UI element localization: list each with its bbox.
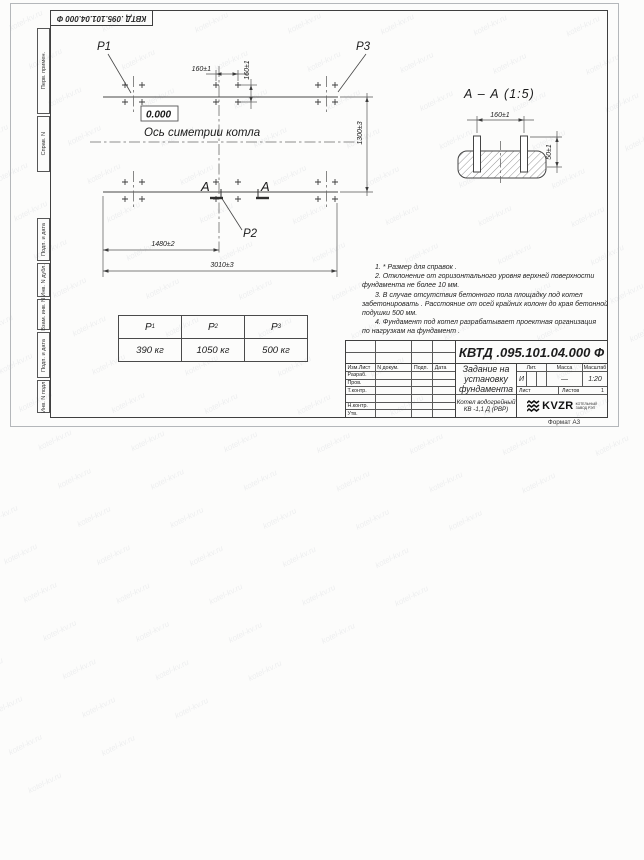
sign-row: Утв.: [346, 410, 455, 417]
margin-box-vzam-inv: Взам. инв. N: [37, 299, 50, 330]
mass-header: Масса: [547, 364, 583, 371]
margin-label: Справ. N: [41, 132, 47, 155]
margin-label: Перв. примен.: [41, 52, 47, 89]
revision-header-row: Изм.Лист N докум. Подп. Дата: [346, 364, 455, 372]
sign-row: Разраб.: [346, 372, 455, 380]
title-block-doc-row: КВТД .095.101.04.000 Ф: [346, 341, 607, 364]
sheets-cell: Листов 1: [559, 387, 607, 394]
sign-row: Пров.: [346, 380, 455, 388]
note-line: 2. Отклонение от горизонтального уровня …: [362, 272, 608, 281]
load-table-header-p1: P1: [119, 316, 182, 338]
margin-box-inv-podl: Инв. N подл.: [37, 380, 50, 413]
lit-mass-scale-values: И — 1:20: [517, 372, 607, 387]
sheets-value: 1: [601, 388, 604, 394]
drawing-title: Задание на установку фундамента: [456, 364, 516, 395]
lit-mass-scale-header: Лит. Масса Масштаб: [517, 364, 607, 372]
lit-cells: И: [517, 372, 547, 386]
note-line: по нагрузкам на фундамент .: [362, 327, 608, 336]
notes-block: 1. * Размер для справок . 2. Отклонение …: [362, 263, 608, 337]
margin-box-podp-data-1: Подп. и дата: [37, 218, 50, 261]
load-value-p2: 1050 кг: [182, 339, 245, 361]
kvzr-logo-text: KVZR: [542, 400, 574, 412]
note-line: забетонировать . Расстояние от осей край…: [362, 300, 608, 309]
product-name: Котел водогрейный КВ -1,1 Д (РВР): [456, 395, 516, 417]
format-label: Формат А3: [520, 419, 608, 426]
sheets-label: Листов: [562, 388, 579, 394]
top-rotated-stamp: КВТД .095.101.04.000 Ф: [50, 10, 153, 26]
rev-col-ndocum: N докум.: [376, 364, 413, 371]
note-line: 4. Фундамент под котел разрабатывает про…: [362, 318, 608, 327]
rev-col-izm-list: Изм.Лист: [346, 364, 376, 371]
sheet-row: Лист Листов 1: [517, 387, 607, 395]
load-table-header-row: P1 P2 P3: [119, 316, 307, 339]
load-table-header-p3: P3: [245, 316, 307, 338]
scale-header: Масштаб: [583, 364, 607, 371]
margin-label: Взам. инв. N: [41, 298, 47, 331]
note-line: 1. * Размер для справок .: [362, 263, 608, 272]
note-line: 3. В случае отсутствия бетонного пола пл…: [362, 291, 608, 300]
rev-col-podp: Подп.: [412, 364, 433, 371]
margin-label: Инв. N дубл.: [41, 264, 47, 297]
margin-label: Подп. и дата: [41, 223, 47, 256]
margin-box-perv-primen: Перв. примен.: [37, 28, 50, 114]
load-table-value-row: 390 кг 1050 кг 500 кг: [119, 339, 307, 361]
sheet-label: Лист: [517, 387, 559, 394]
doc-number: КВТД .095.101.04.000 Ф: [456, 341, 607, 363]
sign-row: Т.контр.: [346, 387, 455, 395]
mass-value: —: [547, 372, 583, 386]
margin-label: Подп. и дата: [41, 339, 47, 372]
title-block: КВТД .095.101.04.000 Ф Изм.Лист N докум.…: [345, 340, 608, 418]
margin-box-podp-data-2: Подп. и дата: [37, 332, 50, 378]
margin-box-sprav-n: Справ. N: [37, 116, 50, 172]
load-table: P1 P2 P3 390 кг 1050 кг 500 кг: [118, 315, 308, 362]
load-table-header-p2: P2: [182, 316, 245, 338]
load-value-p1: 390 кг: [119, 339, 182, 361]
load-value-p3: 500 кг: [245, 339, 307, 361]
top-stamp-doc-number: КВТД .095.101.04.000 Ф: [57, 14, 146, 23]
sign-row: Н.контр.: [346, 403, 455, 411]
kvzr-logo-sub2: ЗАВОД РЭП: [576, 406, 597, 410]
lit-header: Лит.: [517, 364, 547, 371]
note-line: подушки 500 мм.: [362, 309, 608, 318]
signature-grid: Изм.Лист N докум. Подп. Дата Разраб. Про…: [346, 364, 456, 417]
margin-box-inv-dubl: Инв. N дубл.: [37, 263, 50, 297]
lit-value: И: [517, 372, 527, 386]
margin-label: Инв. N подл.: [41, 380, 47, 413]
kvzr-logo-icon: [527, 400, 540, 413]
sign-row: [346, 395, 455, 403]
revision-grid: [346, 341, 456, 363]
note-line: фундамента не более 10 мм.: [362, 281, 608, 290]
kvzr-logo: KVZR КОТЕЛЬНЫЙ ЗАВОД РЭП: [517, 395, 607, 417]
scale-value: 1:20: [583, 372, 607, 386]
rev-col-data: Дата: [433, 364, 455, 371]
